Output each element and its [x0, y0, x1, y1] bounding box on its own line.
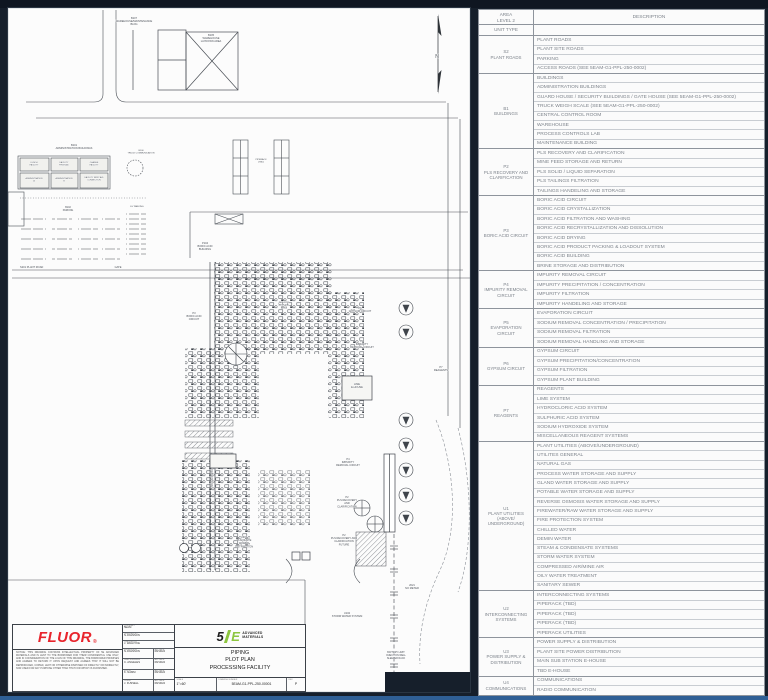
drawing-label: B107WAREHOUSE/MAINTENANCEBLDG	[116, 16, 153, 26]
legend-description-row: PIPERACK (TBD)	[534, 619, 764, 628]
legend-group: P3BORIC ACID CIRCUITBORIC ACID CIRCUITBO…	[479, 195, 764, 270]
legend-description-row: PLANT SITE POWER DISTRIBUTION	[534, 647, 764, 657]
unit-type-cell: U3POWER SUPPLY & DISTRIBUTION	[479, 638, 534, 675]
drawing-label: U102STORM WATER SYSTEM	[332, 611, 363, 618]
legend-description-row: LIME SYSTEM	[534, 394, 764, 403]
legend-description-row: BORIC ACID BUILDING	[534, 252, 764, 261]
legend-description-row: PROCESS CONTROLS LAB	[534, 129, 764, 138]
legend-group: P4IMPURITY REMOVAL CIRCUITIMPURITY REMOV…	[479, 270, 764, 308]
drawing-label: B105WAREHOUSELAYDOWN AREA	[201, 33, 222, 43]
fluor-logo: FLUOR®	[13, 625, 122, 649]
legend-description-row: TAILINGS HANDELING AND STORAGE	[534, 186, 764, 195]
legend-description-row: BORIC ACID FILTRATION AND WASHING	[534, 214, 764, 223]
unit-type-cell: P5EVAPORATION CIRCUIT	[479, 309, 534, 346]
plot-plan-sheet: B107WAREHOUSE/MAINTENANCEBLDGB105WAREHOU…	[8, 8, 470, 692]
truck-communication-circle	[127, 160, 143, 176]
unit-type-cell: B1BUILDINGS	[479, 74, 534, 148]
legend-description-row: IMPURITY PRECIPITATION / CONCENTRATION	[534, 280, 764, 290]
unit-type-cell: U1PLANT UTILITIES (ABOVE/ UNDERGROUND)	[479, 442, 534, 590]
area-legend-table: AREA LEVEL 2 DESCRIPTION UNIT TYPE S2PLA…	[478, 9, 765, 696]
contract-cell: CONTRACT 5EAM	[123, 625, 174, 633]
unit-type-cell: P3BORIC ACID CIRCUIT	[479, 196, 534, 270]
terrain-contours	[420, 420, 470, 664]
drawing-label: S201 PLANT ROAD	[20, 265, 43, 269]
drawing-label: P104BORIC ACIDBUILDING	[198, 241, 213, 251]
unit-type-header: UNIT TYPE	[479, 25, 534, 35]
legend-description-row: IMPURITY FILTRATION	[534, 289, 764, 299]
legend-group: B1BUILDINGSBUILDINGSADMINISTRATION BUILD…	[479, 73, 764, 148]
revision-cell: REV P	[287, 678, 305, 691]
ev-parking-area	[126, 210, 146, 256]
piperack-towers	[215, 140, 289, 224]
legend-description-row: GYPSUM FILTRATION	[534, 366, 764, 376]
legend-description-row: STEAM & CONDENSATE SYSTEMS	[534, 544, 764, 553]
checked-by-cell: CHECKED BY J. WALDYKE	[123, 641, 174, 649]
legend-description-row: COMPRESSED AIR/MINE AIR	[534, 562, 764, 571]
legend-description-row: PIPERACK UTILITIES	[534, 628, 764, 637]
unit-type-cell: P6GYPSUM CIRCUIT	[479, 348, 534, 385]
scale-cell: SCALE 1"=60'	[175, 678, 217, 691]
legend-description-row: SULPHURIC ACID SYSTEM	[534, 413, 764, 422]
legend-description-row: ADMINISTRATION BUILDINGS	[534, 82, 764, 91]
legend-description-row: DEMIN WATER	[534, 534, 764, 543]
legend-description-row: SODIUM REMOVAL HANDLING AND STORAGE	[534, 337, 764, 347]
designed-by-cell: DESIGNED BY N.JOHNSON	[123, 633, 174, 641]
reagent-tanks	[399, 301, 413, 525]
legend-description-row: PLS RECOVERY AND CLARIFICATION	[534, 149, 764, 157]
title-block-footer: SCALE 1"=60' DRAWING NUMBER 5EAM-G1-PPL-…	[175, 677, 305, 691]
legend-description-row: EVAPORATION CIRCUIT	[534, 309, 764, 318]
legend-description-row: POWER SUPPLY & DISTRIBUTION	[534, 638, 764, 647]
legend-description-row: BORIC ACID DRYING	[534, 233, 764, 242]
legend-description-row: REAGENTS	[534, 386, 764, 394]
drawing-number-cell: DRAWING NUMBER 5EAM-G1-PPL-250-00001	[217, 678, 287, 691]
legend-header: AREA LEVEL 2 DESCRIPTION UNIT TYPE	[479, 10, 764, 36]
legend-description-row: INTERCONNECTING SYSTEMS	[534, 591, 764, 599]
drawing-label: EV PARKING	[130, 205, 144, 208]
legend-description-row: STORM WATER SYSTEM	[534, 553, 764, 562]
legend-description-row: IMPURITY HANDELING AND STORAGE	[534, 299, 764, 309]
legend-description-row: COMMUNICATIONS	[534, 677, 764, 686]
description-header: DESCRIPTION	[534, 10, 764, 25]
legend-description-row: MINE FEED STORAGE AND RETURN	[534, 158, 764, 167]
legend-description-row: FIREWATER/RAW WATER STORAGE AND SUPPLY	[534, 506, 764, 515]
legend-description-row: MISCELLANEOUS REAGENT SYSTEMS	[534, 432, 764, 441]
legend-description-row: SODIUM HYDROXIDE SYSTEM	[534, 422, 764, 431]
legend-description-row: UTILITES GENERAL	[534, 450, 764, 459]
legend-description-row: IMPURITY REMOVAL CIRCUIT	[534, 271, 764, 280]
legend-description-row: MAINTENANCE BUILDING	[534, 139, 764, 148]
sheet-corner-shade	[385, 672, 470, 692]
5e-advanced-materials-logo: 5E ADVANCEDMATERIALS	[175, 625, 305, 647]
legend-description-row: MAIN SUB STATION E-HOUSE	[534, 657, 764, 667]
drawing-label: 2021NO METER	[405, 583, 419, 590]
approval-row: LEAD ENGINEERC. ANGELES APP DATE08/19/24	[123, 659, 174, 670]
approval-row: SUPERVISORN.JOHNSON APP DATE08/19/24	[123, 649, 174, 660]
legend-description-row: OILY WATER TREATMENT	[534, 571, 764, 580]
drawing-label: B101ADMINISTRATION BUILDINGS	[56, 143, 93, 150]
legend-description-row: TRUCK WEIGH SCALE (SEE 5EAM-G1-PPL-250-0…	[534, 101, 764, 110]
legend-group: P6GYPSUM CIRCUITGYPSUM CIRCUITGYPSUM PRE…	[479, 347, 764, 385]
drawing-label: B106TRUCK COMMUNICATION	[128, 150, 155, 155]
legend-description-row: PLANT ROADS	[534, 36, 764, 45]
legend-description-row: PLS TAILINGS FILTRATION	[534, 176, 764, 185]
drawing-label: CHANGEFACILITY	[90, 161, 99, 166]
legend-group: U1PLANT UTILITIES (ABOVE/ UNDERGROUND)PL…	[479, 441, 764, 590]
header-spacer	[534, 25, 764, 35]
legend-description-row: GYPSUM PLANT BUILDING	[534, 375, 764, 385]
drawing-label: PIPERACK(TBD)	[255, 158, 267, 164]
legend-group: U2INTERCONNECTING SYSTEMSINTERCONNECTING…	[479, 590, 764, 637]
legend-description-row: PLANT SITE ROADS	[534, 45, 764, 55]
warehouse-buildings	[133, 30, 238, 90]
legend-description-row: PLANT UTILITIES (ABOVE/UNDERGROUND)	[534, 442, 764, 450]
title-block-title-column: 5E ADVANCEDMATERIALS PIPING PLOT PLAN PR…	[175, 625, 305, 691]
legend-description-row: CENTRAL CONTROL ROOM	[534, 111, 764, 120]
battery-limit-line	[390, 534, 398, 688]
area-level-header: AREA LEVEL 2	[479, 10, 534, 25]
legend-description-row: SODIUM REMOVAL CONCENTRATION / PRECIPITA…	[534, 318, 764, 328]
legal-notice: NOTICE: THIS DRAWING CONTAINS INTELLECTU…	[13, 649, 122, 691]
approval-row: CLIENTJ. FUSSELL APP DATE08/19/24	[123, 680, 174, 691]
legend-description-row: PIPERACK (TBD)	[534, 600, 764, 609]
legend-description-row: TBD E-HOUSE	[534, 666, 764, 676]
legend-description-row: GYPSUM CIRCUIT	[534, 348, 764, 357]
drawing-label: B102PARKING	[63, 206, 74, 212]
legend-description-row: NATURAL GAS	[534, 460, 764, 469]
legend-description-row: HYDROCLORIC ACID SYSTEM	[534, 403, 764, 412]
legend-group: P7REAGENTSREAGENTSLIME SYSTEMHYDROCLORIC…	[479, 385, 764, 442]
legend-description-row: SANITARY SEWER	[534, 581, 764, 590]
legend-description-row: BORIC ACID PRODUCT PACKING & LOADOUT SYS…	[534, 242, 764, 251]
legend-description-row: BORIC ACID RECRYSTALLIZATION AND DISSOLU…	[534, 224, 764, 233]
legend-group: U4COMMUNICATIONSCOMMUNICATIONSRADIO COMM…	[479, 676, 764, 696]
unit-type-cell: U2INTERCONNECTING SYSTEMS	[479, 591, 534, 637]
legend-description-row: BUILDINGS	[534, 74, 764, 82]
legend-description-row: BORIC ACID CRYSTALLIZATION	[534, 205, 764, 214]
parking-area	[20, 210, 146, 262]
unit-type-cell: P7REAGENTS	[479, 386, 534, 442]
legend-description-row: PROCESS WATER STORAGE AND SUPPLY	[534, 469, 764, 478]
title-block-signoff-column: CONTRACT 5EAM DESIGNED BY N.JOHNSON CHEC…	[123, 625, 175, 691]
legend-group: U3POWER SUPPLY & DISTRIBUTIONPOWER SUPPL…	[479, 637, 764, 675]
legend-description-row: CHILLED WATER	[534, 525, 764, 534]
drawing-label: P7REAGENTS	[434, 365, 449, 372]
drawing-label: BATTERY LIMITINJECTION WELLSLEEPER RACK	[386, 651, 406, 660]
process-equipment-clusters	[182, 262, 364, 572]
drawing-label: P2PLS RECOVERYANDCLARIFICATION	[337, 495, 357, 508]
future-area-hatch	[356, 532, 386, 566]
legend-body: S2PLANT ROADSPLANT ROADSPLANT SITE ROADS…	[479, 36, 764, 695]
legend-description-row: FIRE PROTECTION SYSTEM	[534, 516, 764, 525]
legend-description-row: BORIC ACID CIRCUIT	[534, 196, 764, 204]
legend-description-row: ACCESS ROADS (SEE 5EAM-G1-PPL-250-0002)	[534, 64, 764, 74]
legend-description-row: GYPSUM PRECIPITATION/CONCENTRATION	[534, 356, 764, 366]
bottom-border	[0, 696, 768, 700]
unit-type-cell: P4IMPURITY REMOVAL CIRCUIT	[479, 271, 534, 308]
legend-group: P2PLS RECOVERY AND CLARIFICATIONPLS RECO…	[479, 148, 764, 195]
legend-description-row: POTABLE WATER STORAGE AND SUPPLY	[534, 488, 764, 497]
drawing-title: PIPING PLOT PLAN PROCESSING FACILITY	[175, 647, 305, 677]
legend-description-row: PLS SOLID / LIQUID SEPARATION	[534, 167, 764, 176]
legend-description-row: PIPERACK (TBD)	[534, 609, 764, 618]
plot-plan-drawing: B107WAREHOUSE/MAINTENANCEBLDGB105WAREHOU…	[8, 8, 470, 692]
drawing-label: PIPERACK (TBD)	[211, 468, 214, 487]
drawing-label: N	[435, 54, 439, 60]
drawing-label: P2PLS RECOVERY ANDCLARIFICATIONFUTURE	[331, 533, 357, 546]
drawing-label: P3BORIC ACIDCIRCUIT	[187, 311, 202, 321]
legend-description-row: GUARD HOUSE / SECURITY BUILDINGS / GATE …	[534, 92, 764, 101]
legend-description-row: RADIO COMMUNICATION	[534, 685, 764, 695]
legend-group: S2PLANT ROADSPLANT ROADSPLANT SITE ROADS…	[479, 36, 764, 73]
legend-description-row: PARKING	[534, 54, 764, 64]
legend-description-row: SODIUM REMOVAL FILTRATION	[534, 328, 764, 338]
unit-type-cell: P2PLS RECOVERY AND CLARIFICATION	[479, 149, 534, 195]
legend-description-row: GLAND WATER STORAGE AND SUPPLY	[534, 478, 764, 487]
legend-description-row: BRINE STORAGE AND DISTRIBUTION	[534, 261, 764, 270]
unit-type-cell: U4COMMUNICATIONS	[479, 677, 534, 696]
title-block: FLUOR® NOTICE: THIS DRAWING CONTAINS INT…	[12, 624, 306, 692]
drawing-label: GATE	[115, 265, 122, 269]
legend-description-row: REVERSE OSMOSIS WATER STORAGE AND SUPPLY	[534, 497, 764, 506]
drawing-label: FACILITYFIRST AID	[59, 161, 69, 166]
legend-description-row: WAREHOUSE	[534, 120, 764, 129]
top-border	[0, 0, 768, 8]
approval-row: FLUORK. NAMM APP DATE08/19/24	[123, 670, 174, 681]
drawing-label: P4IMPURITYREMOVAL CIRCUIT	[336, 457, 360, 467]
title-block-fluor-column: FLUOR® NOTICE: THIS DRAWING CONTAINS INT…	[13, 625, 123, 691]
legend-group: P5EVAPORATION CIRCUITEVAPORATION CIRCUIT…	[479, 308, 764, 346]
unit-type-cell: S2PLANT ROADS	[479, 36, 534, 73]
